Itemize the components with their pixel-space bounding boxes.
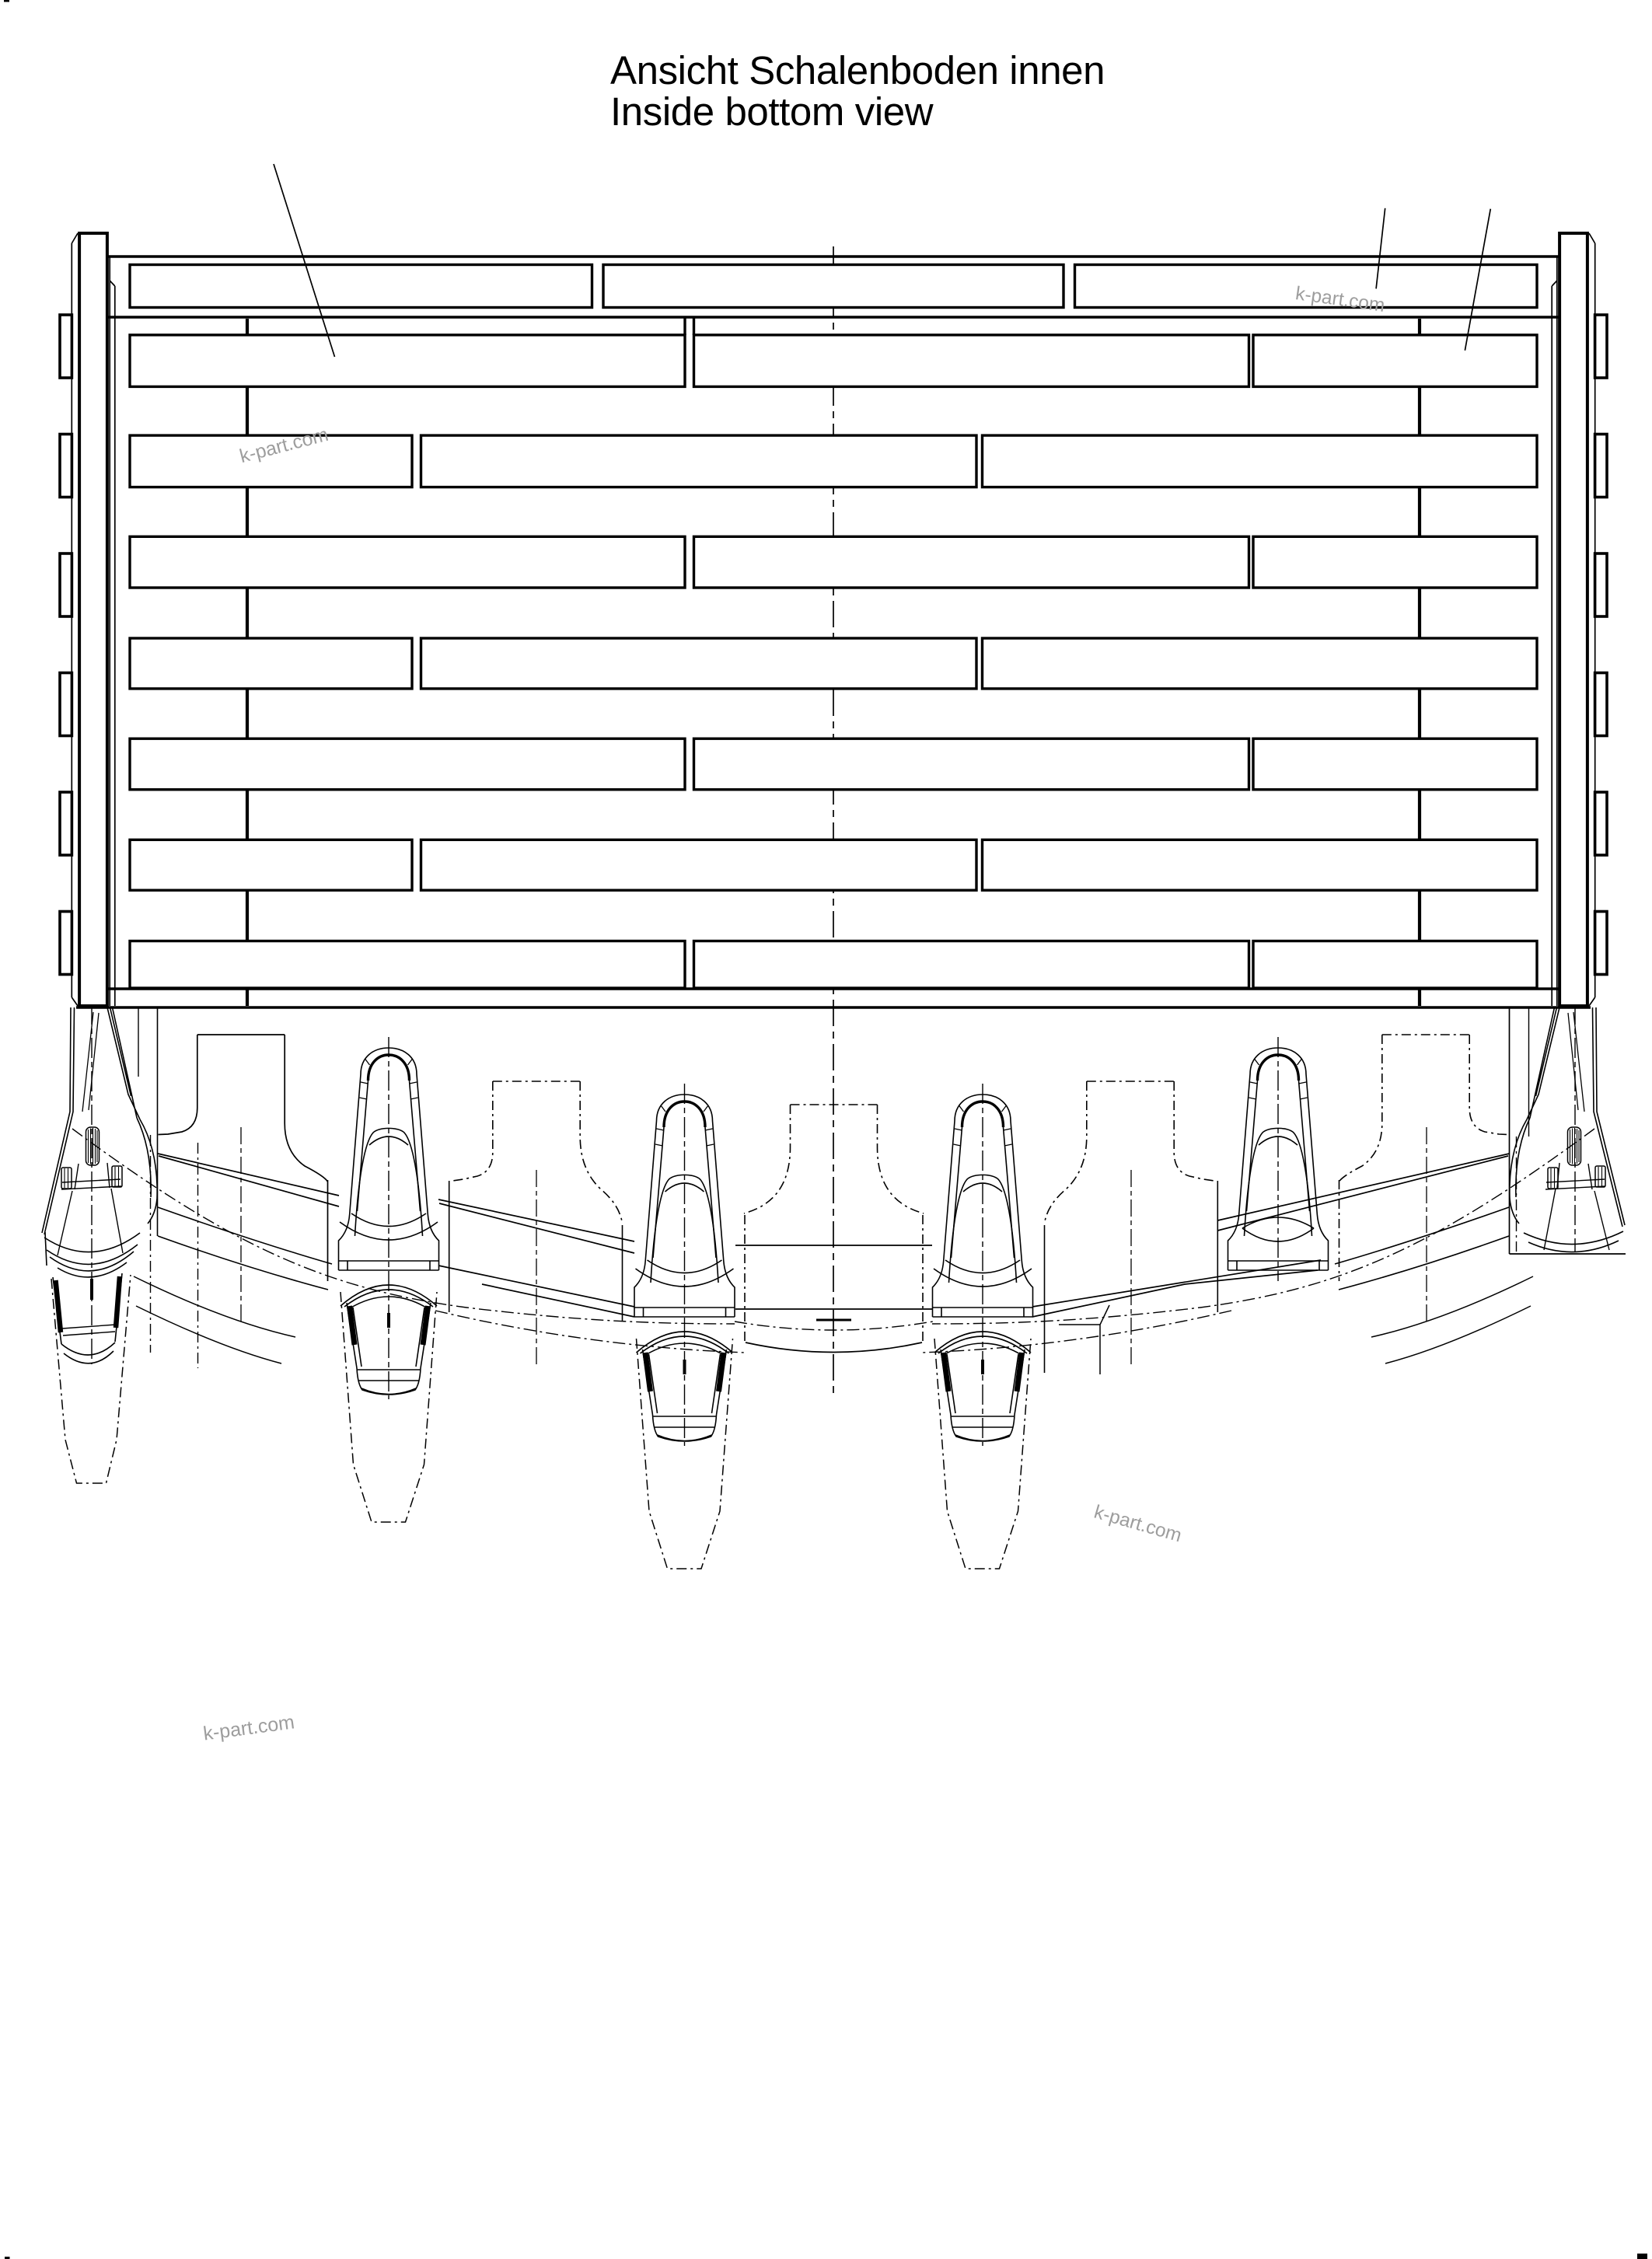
svg-text:Inside bottom view: Inside bottom view	[610, 89, 934, 134]
svg-text:Ansicht Schalenboden innen: Ansicht Schalenboden innen	[610, 48, 1105, 93]
